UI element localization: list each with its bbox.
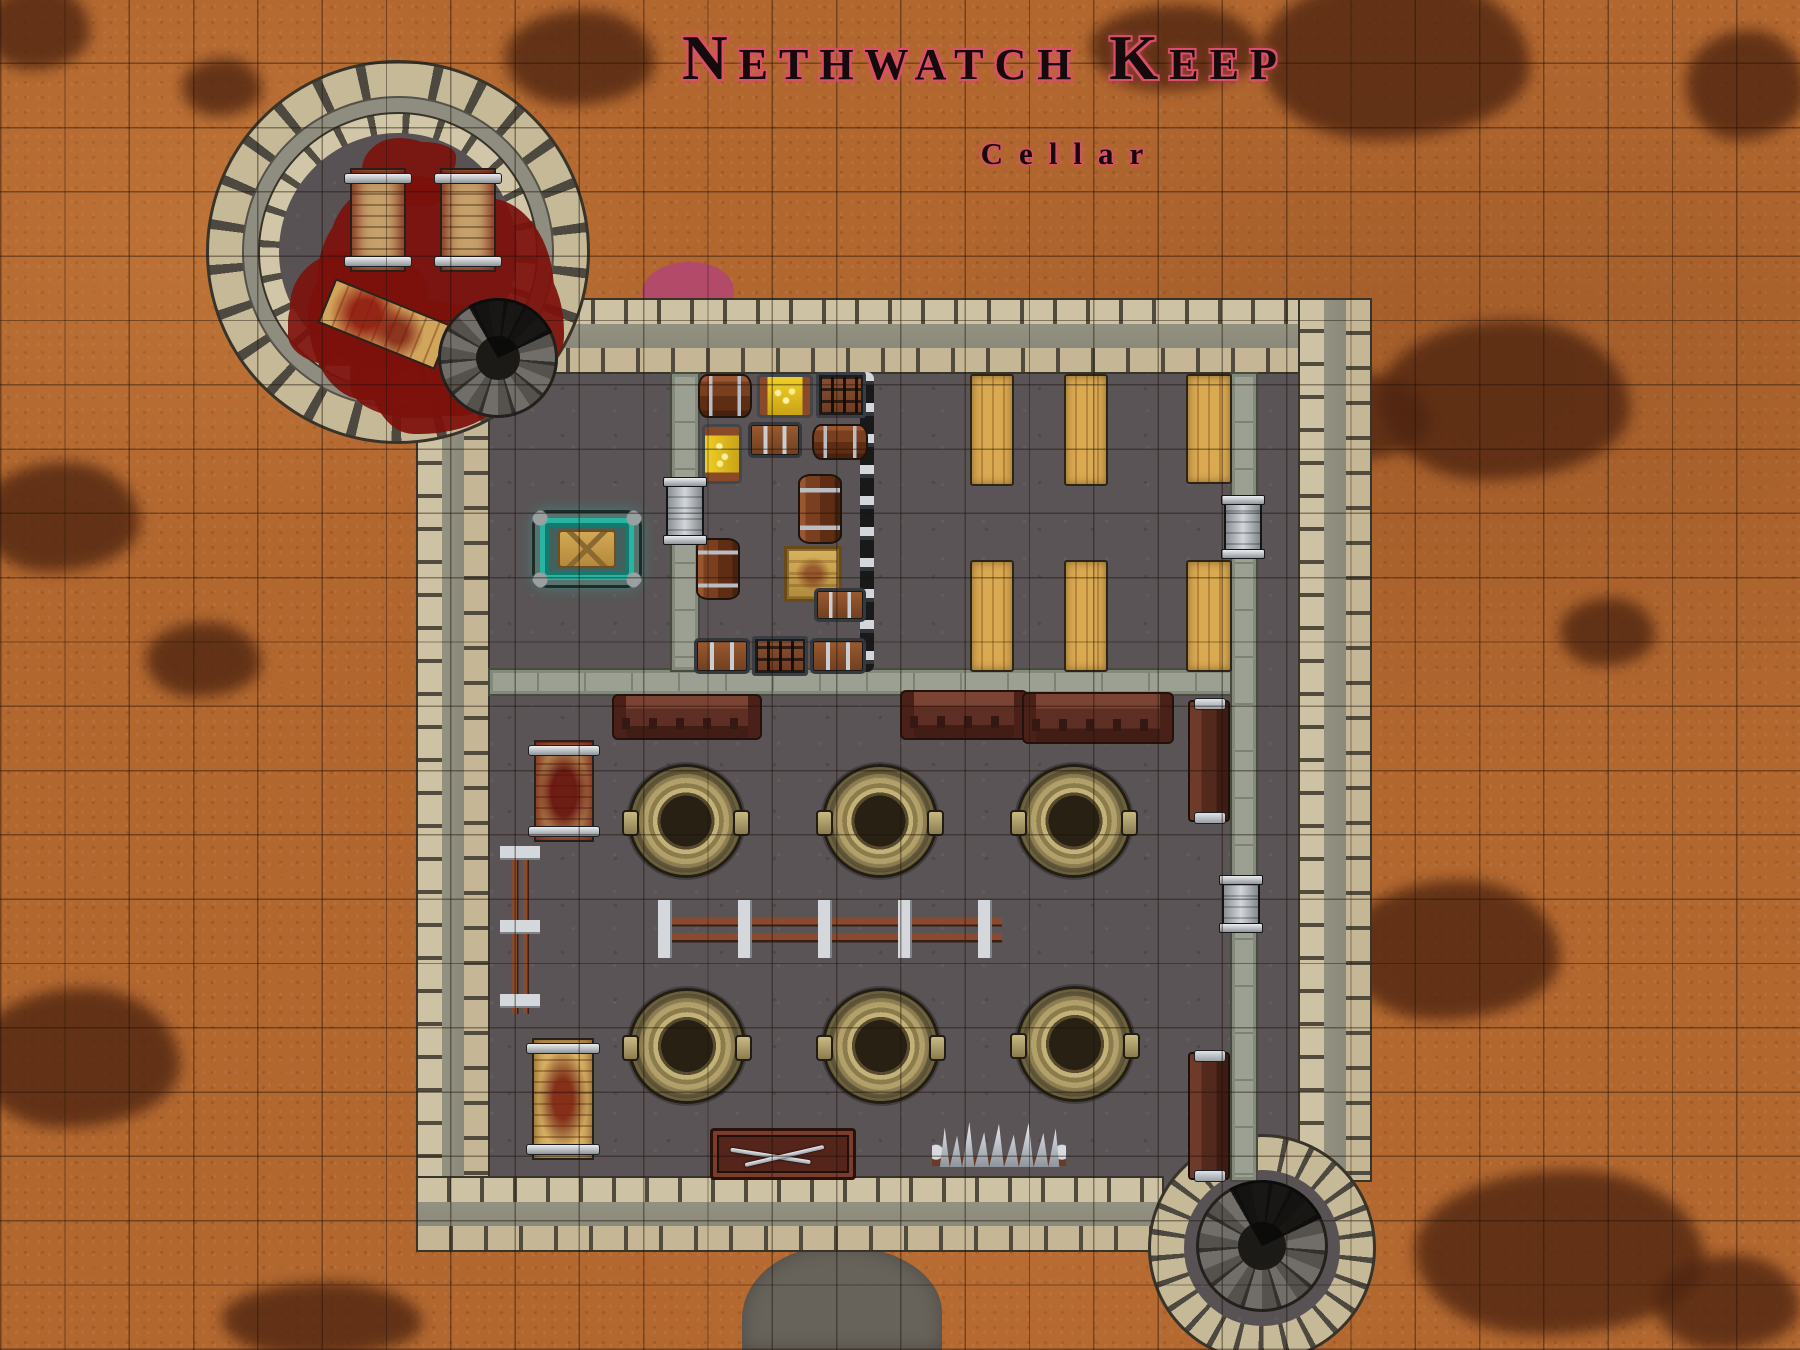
map-canvas: Nethwatch Keep Cellar [0,0,1800,1350]
chest [694,638,750,674]
barrel [698,374,752,418]
rail-fence [658,900,1002,958]
ornate-bench [900,690,1028,740]
bench [1188,700,1230,822]
treasure-chest-open [702,424,742,484]
ritual-table [532,510,642,588]
cauldron [628,988,746,1104]
cauldron [822,764,938,878]
door [1222,876,1260,932]
barrel [798,474,842,544]
chest [814,588,866,622]
wooden-table [1186,560,1232,672]
map-subtitle: Cellar [170,136,1800,172]
cage-crate [816,372,866,418]
spike-row [932,1122,1066,1180]
torture-rack [350,168,406,272]
terrain-stain [0,988,180,1128]
map-title: Nethwatch Keep [85,22,1800,95]
terrain-stain [222,1282,422,1350]
wall-south [416,1176,1164,1252]
terrain-stain [1560,598,1655,666]
wooden-table [970,374,1014,486]
weapon-rack-chest [710,1128,856,1180]
cage-crate [752,636,808,676]
barrel [812,424,868,460]
door [666,478,704,544]
terrain-stain [0,0,90,70]
door [1224,496,1262,558]
cauldron [822,988,940,1104]
rail-fence [500,846,540,1014]
torture-rack-bloody [534,740,594,842]
wall-inner-east [1230,372,1258,1182]
terrain-stain [146,622,261,697]
terrain-stain [1345,880,1560,1020]
wooden-table [1064,560,1108,672]
treasure-chest-open [757,374,813,418]
wooden-table [1064,374,1108,486]
wooden-table [1186,374,1232,484]
ornate-bench [1022,692,1174,744]
wooden-table [970,560,1014,672]
terrain-stain [0,462,140,572]
barrel [696,538,740,600]
torture-rack-gold [532,1038,594,1160]
spiral-stairs [438,298,558,418]
spiral-stairs [1196,1180,1328,1312]
torture-rack [440,168,496,272]
terrain-stain [1655,1255,1800,1350]
cauldron [1016,764,1132,878]
wall-east [1298,298,1372,1182]
chest [810,638,866,674]
stone-path [742,1246,942,1350]
chest [748,422,802,458]
cauldron [1016,986,1134,1102]
bench [1188,1052,1230,1180]
ornate-bench [612,694,762,740]
cauldron [628,764,744,878]
